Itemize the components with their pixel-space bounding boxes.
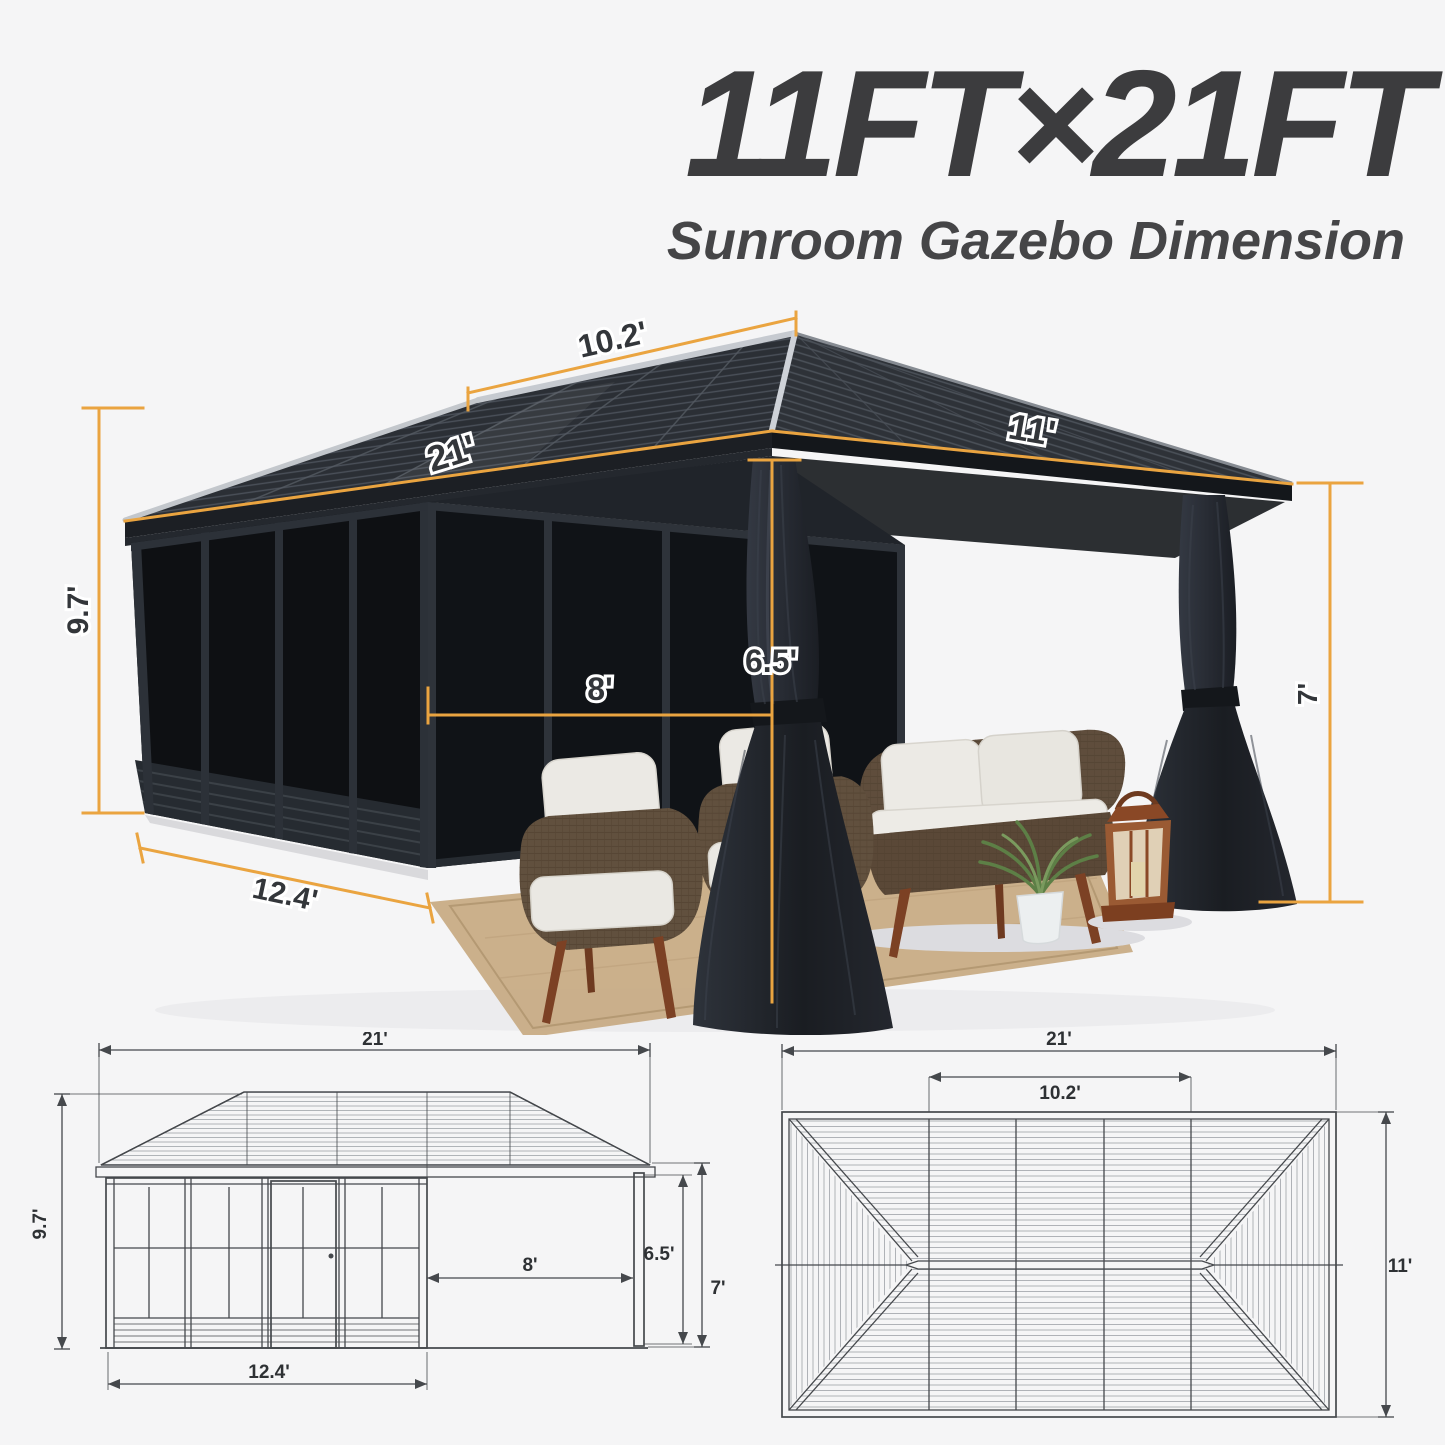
gazebo-photo: 10.2' 21' 11' 9.7' 8' 6.5' xyxy=(55,290,1375,1035)
dim-opening-label: 8' xyxy=(587,671,612,707)
roofplan-drawing: 21' 10.2' 11' xyxy=(750,1025,1445,1435)
elevation-sunroom xyxy=(106,1178,427,1348)
elevation-roof xyxy=(90,1090,665,1348)
dim-eave-height-label: 7' xyxy=(1292,683,1323,705)
roofplan-roof xyxy=(775,1110,1343,1420)
door-handle xyxy=(329,1254,334,1259)
elevation-fascia xyxy=(96,1167,655,1177)
dim-ridge-label: 10.2' xyxy=(574,314,650,365)
ridge-band xyxy=(906,1261,1214,1269)
plan-roof-length-label: 21' xyxy=(1046,1029,1072,1050)
plan-ridge-length-label: 10.2' xyxy=(1039,1083,1081,1104)
elevation-drawing: 21' 9.7' 12.4' 8' xyxy=(30,1032,730,1427)
page: 11FT×21FT Sunroom Gazebo Dimension xyxy=(0,0,1445,1445)
elev-sunroom-length-label: 12.4' xyxy=(248,1362,290,1383)
dim-peak-height-label: 9.7' xyxy=(62,586,95,635)
dim-sunroom-length-label: 12.4' xyxy=(249,872,320,918)
plan-roof-width-label: 11' xyxy=(1388,1256,1413,1277)
elev-eave-height-label: 7' xyxy=(710,1278,725,1299)
page-subtitle: Sunroom Gazebo Dimension xyxy=(667,210,1405,272)
elev-post-height-label: 6.5' xyxy=(644,1244,675,1265)
plant-pot xyxy=(1017,892,1063,944)
header: 11FT×21FT Sunroom Gazebo Dimension xyxy=(527,48,1427,272)
elev-height-label: 9.7' xyxy=(30,1209,51,1240)
elevation-post xyxy=(634,1173,644,1346)
dim-post-height-label: 6.5' xyxy=(745,643,797,679)
sunroom-wall xyxy=(131,502,428,880)
elev-total-length-label: 21' xyxy=(362,1032,388,1050)
elev-opening-label: 8' xyxy=(522,1255,537,1276)
dim-roof-width-label: 11' xyxy=(1006,405,1059,453)
dim-peak-height: 9.7' xyxy=(62,408,143,813)
page-title: 11FT×21FT xyxy=(685,48,1427,200)
